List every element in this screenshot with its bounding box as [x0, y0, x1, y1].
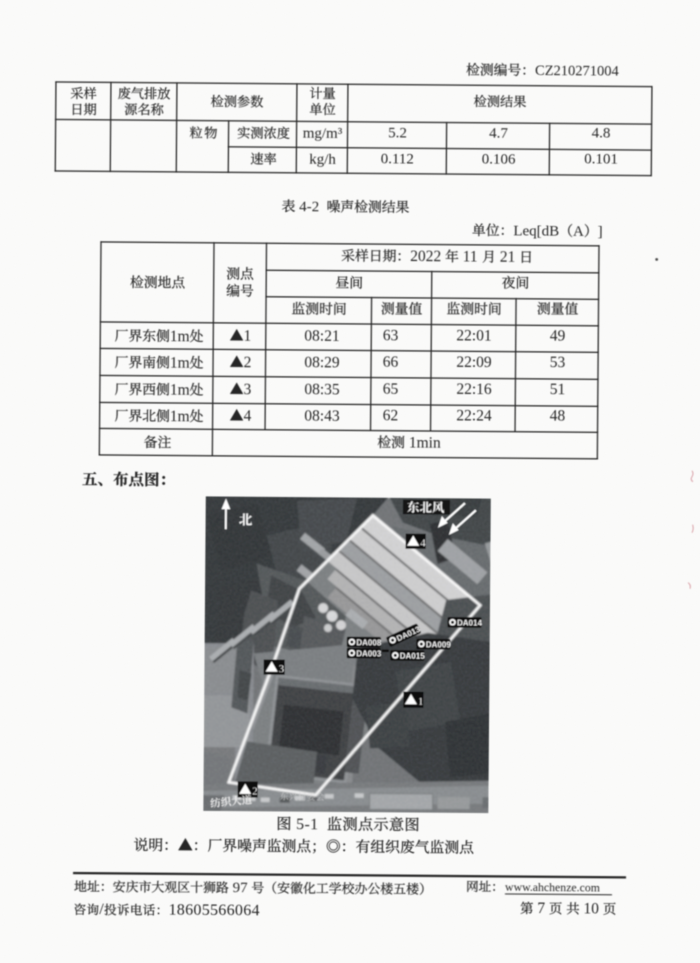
svg-text:]: ] [598, 224, 603, 240]
svg-text:08:35: 08:35 [304, 381, 340, 398]
svg-text:DA014: DA014 [457, 619, 483, 628]
svg-text:2022: 2022 [410, 248, 441, 265]
svg-text:DA003: DA003 [356, 649, 382, 658]
svg-text:22:24: 22:24 [456, 407, 492, 424]
svg-text:4.7: 4.7 [489, 126, 508, 142]
svg-text:2: 2 [252, 785, 258, 797]
svg-text:49: 49 [550, 327, 566, 344]
svg-text:22:01: 22:01 [456, 327, 491, 344]
svg-text:3: 3 [243, 381, 251, 398]
svg-text:53: 53 [550, 354, 566, 371]
svg-text:DA015: DA015 [400, 652, 426, 661]
svg-text:21: 21 [500, 249, 516, 266]
svg-text:5-1: 5-1 [296, 816, 318, 833]
svg-text:3: 3 [279, 663, 285, 675]
svg-text:97: 97 [233, 880, 249, 896]
svg-text:2: 2 [243, 354, 251, 371]
svg-text:48: 48 [550, 407, 566, 424]
svg-text:0.112: 0.112 [381, 151, 414, 167]
svg-text:22:09: 22:09 [456, 354, 492, 371]
svg-text:kg/h: kg/h [309, 151, 336, 167]
svg-text:0.106: 0.106 [482, 151, 516, 167]
svg-text:66: 66 [383, 354, 399, 371]
svg-text:7: 7 [537, 900, 545, 917]
svg-text:22:16: 22:16 [456, 381, 492, 398]
svg-text:18605566064: 18605566064 [168, 902, 259, 920]
svg-text:4: 4 [420, 537, 426, 549]
svg-text:51: 51 [550, 381, 566, 398]
svg-text:1m: 1m [170, 328, 190, 345]
svg-text:4: 4 [243, 408, 251, 425]
svg-text:A: A [573, 224, 584, 240]
svg-text:08:21: 08:21 [304, 327, 339, 344]
svg-text:/: / [99, 901, 104, 918]
svg-text:1: 1 [418, 696, 424, 708]
svg-text:Leq[dB: Leq[dB [513, 223, 559, 239]
svg-text:1m: 1m [170, 408, 190, 425]
svg-text:1: 1 [243, 328, 251, 345]
svg-text:4.8: 4.8 [592, 126, 611, 142]
svg-text:63: 63 [383, 327, 399, 344]
svg-text:0.101: 0.101 [584, 151, 618, 167]
svg-text:10: 10 [583, 900, 599, 917]
svg-text:DA009: DA009 [426, 640, 452, 649]
svg-text:08:29: 08:29 [304, 354, 340, 371]
svg-text:www.ahchenze.com: www.ahchenze.com [505, 880, 600, 895]
svg-text:65: 65 [383, 381, 399, 398]
svg-text:1m: 1m [170, 381, 190, 398]
svg-text:62: 62 [383, 407, 399, 424]
svg-text:1min: 1min [409, 434, 441, 451]
svg-text:CZ210271004: CZ210271004 [535, 63, 620, 80]
svg-text:08:43: 08:43 [304, 407, 340, 424]
svg-text:mg/m³: mg/m³ [303, 126, 343, 142]
svg-text:DA008: DA008 [356, 638, 382, 647]
svg-text:5.2: 5.2 [388, 126, 407, 142]
svg-text:4-2: 4-2 [299, 199, 319, 215]
svg-text:1m: 1m [170, 354, 190, 371]
svg-text:11: 11 [463, 248, 478, 265]
